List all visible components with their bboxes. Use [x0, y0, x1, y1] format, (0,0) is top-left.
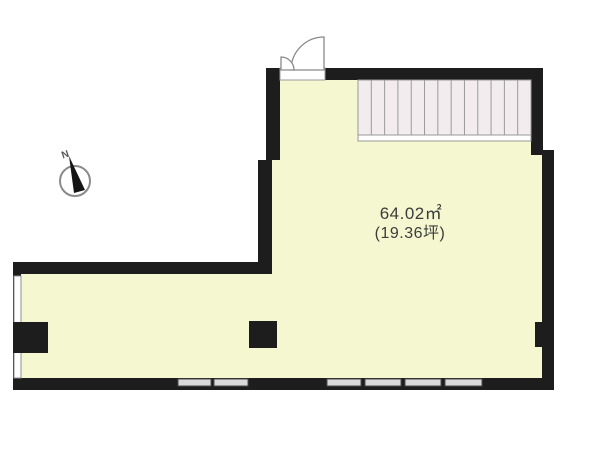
staircase-bottom-strip [358, 135, 531, 141]
north-arrow-icon [69, 156, 85, 193]
compass: N [60, 149, 90, 196]
staircase-area [358, 80, 531, 135]
entrance-door-leaf-main [291, 37, 324, 70]
window-sash [178, 379, 211, 386]
window-sash [445, 379, 482, 386]
area-tsubo: (19.36坪) [375, 224, 446, 242]
entrance-door-leaf-child [281, 57, 294, 70]
floor-plan-canvas: 64.02㎡ (19.36坪) N [0, 0, 600, 450]
pillar [249, 321, 277, 348]
window-sash [214, 379, 248, 386]
pillar [13, 322, 48, 353]
area-square-meters: 64.02㎡ [380, 204, 443, 223]
bottom-windows [178, 379, 482, 386]
floor-plan: 64.02㎡ (19.36坪) N [0, 0, 600, 450]
window-sash [365, 379, 401, 386]
north-label: N [60, 149, 70, 162]
pillar [535, 322, 554, 347]
window-sash [405, 379, 441, 386]
window-sash [327, 379, 361, 386]
